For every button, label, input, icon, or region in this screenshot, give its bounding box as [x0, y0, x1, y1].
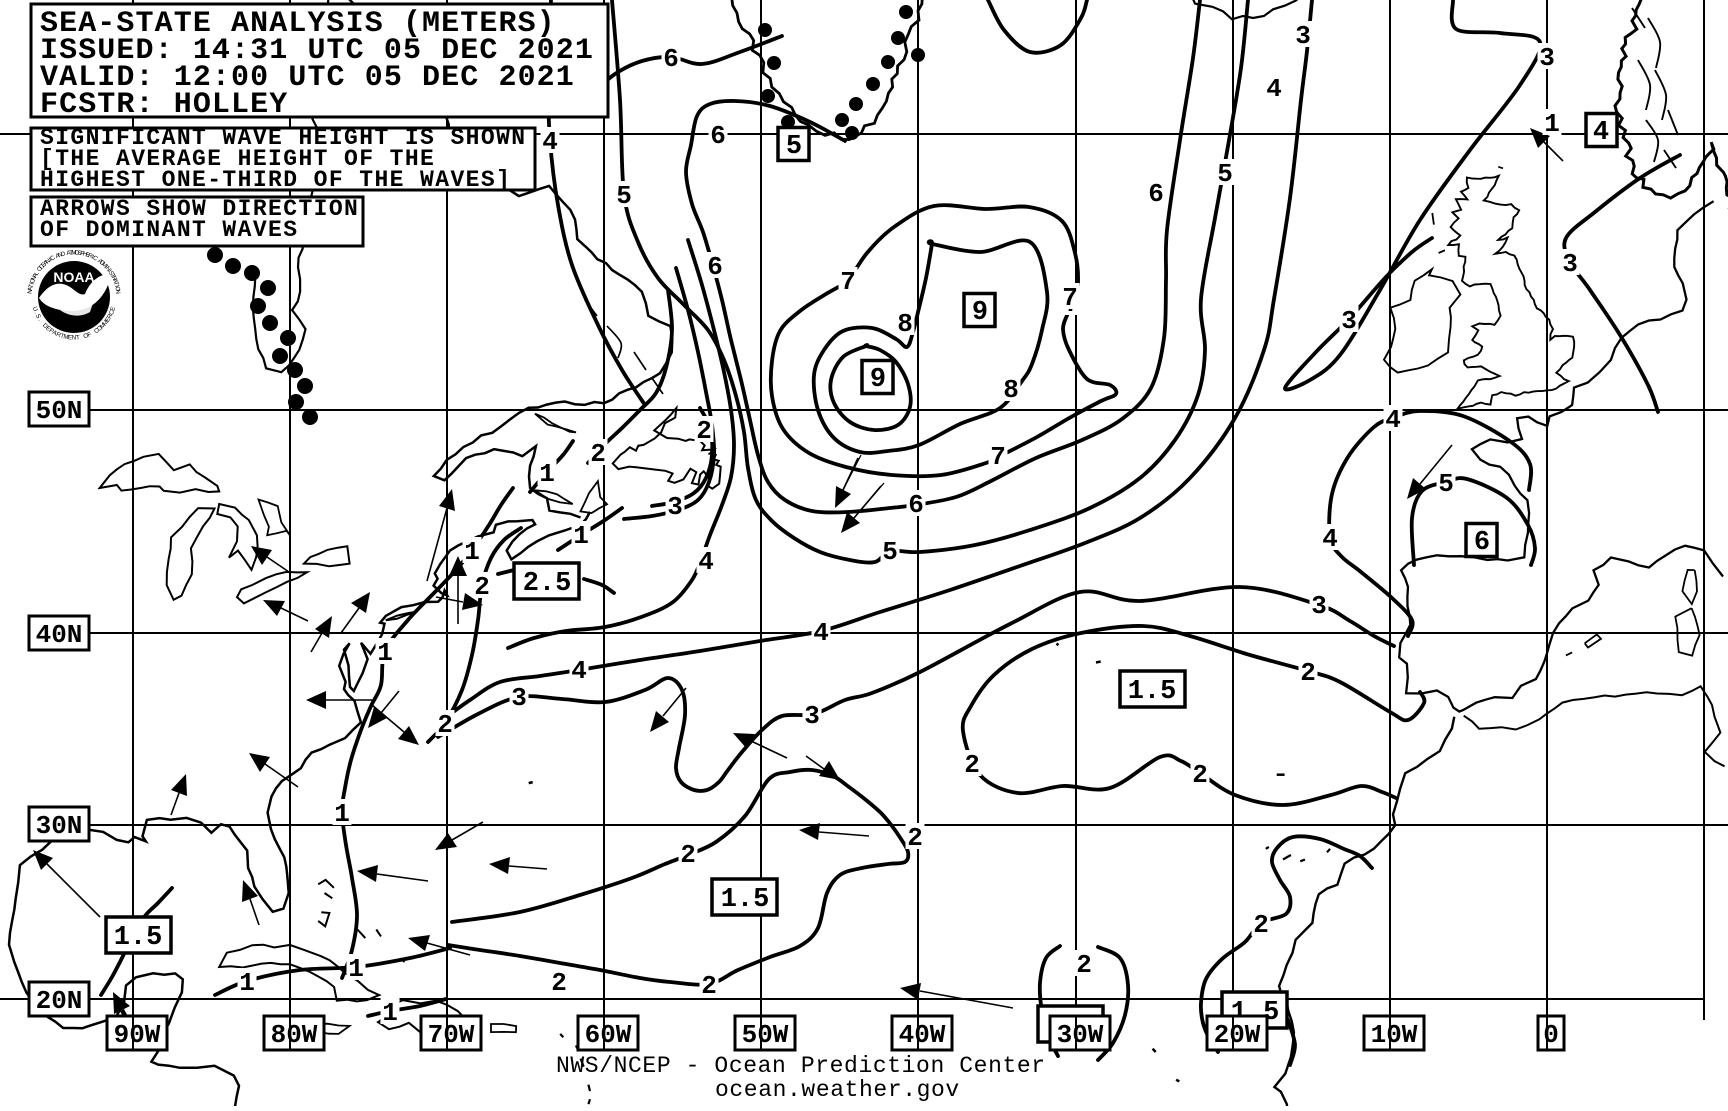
- svg-text:1: 1: [348, 954, 364, 984]
- svg-text:4: 4: [1385, 405, 1401, 435]
- svg-text:3: 3: [667, 492, 683, 522]
- svg-text:4: 4: [571, 656, 587, 686]
- svg-text:40W: 40W: [899, 1020, 946, 1050]
- svg-text:9: 9: [870, 365, 886, 395]
- svg-text:ocean.weather.gov: ocean.weather.gov: [715, 1077, 960, 1103]
- svg-text:OF DOMINANT WAVES: OF DOMINANT WAVES: [40, 217, 298, 243]
- svg-text:HIGHEST ONE-THIRD OF THE WAVES: HIGHEST ONE-THIRD OF THE WAVES]: [40, 167, 511, 193]
- svg-text:2: 2: [964, 750, 980, 780]
- svg-text:8: 8: [1003, 375, 1019, 405]
- svg-text:4: 4: [1266, 74, 1282, 104]
- svg-text:1: 1: [239, 968, 255, 998]
- svg-text:60W: 60W: [585, 1020, 632, 1050]
- svg-text:2: 2: [590, 439, 606, 469]
- svg-text:1.5: 1.5: [114, 923, 163, 953]
- svg-text:20W: 20W: [1214, 1020, 1261, 1050]
- svg-text:NOAA: NOAA: [53, 269, 94, 285]
- svg-text:5: 5: [1217, 159, 1233, 189]
- svg-text:50W: 50W: [742, 1020, 789, 1050]
- svg-text:3: 3: [1539, 43, 1555, 73]
- svg-text:4: 4: [813, 618, 829, 648]
- svg-text:2: 2: [1253, 910, 1269, 940]
- svg-text:20N: 20N: [36, 986, 83, 1016]
- svg-text:40N: 40N: [36, 620, 83, 650]
- svg-text:2: 2: [474, 572, 490, 602]
- svg-text:3: 3: [511, 683, 527, 713]
- svg-text:1: 1: [1544, 109, 1560, 139]
- svg-text:70W: 70W: [428, 1020, 475, 1050]
- svg-text:1: 1: [377, 638, 393, 668]
- svg-text:2: 2: [907, 823, 923, 853]
- svg-text:6: 6: [710, 121, 726, 151]
- svg-text:1: 1: [382, 998, 398, 1028]
- svg-text:6: 6: [707, 252, 723, 282]
- svg-text:4: 4: [698, 547, 714, 577]
- svg-text:4: 4: [1593, 118, 1609, 148]
- svg-text:NWS/NCEP - Ocean Prediction Ce: NWS/NCEP - Ocean Prediction Center: [556, 1053, 1046, 1079]
- svg-text:3: 3: [1341, 306, 1357, 336]
- svg-text:2: 2: [1192, 760, 1208, 790]
- svg-text:4: 4: [1322, 524, 1338, 554]
- svg-text:1.5: 1.5: [1128, 677, 1177, 707]
- svg-text:7: 7: [840, 267, 856, 297]
- svg-text:1: 1: [334, 799, 350, 829]
- svg-text:2: 2: [1076, 950, 1092, 980]
- svg-text:5: 5: [1438, 469, 1454, 499]
- svg-text:6: 6: [908, 490, 924, 520]
- svg-text:9: 9: [972, 298, 988, 328]
- svg-text:50N: 50N: [36, 396, 83, 426]
- svg-text:10W: 10W: [1371, 1020, 1418, 1050]
- svg-text:2: 2: [437, 710, 453, 740]
- svg-text:2: 2: [696, 416, 712, 446]
- svg-text:6: 6: [663, 44, 679, 74]
- svg-text:FCSTR: HOLLEY: FCSTR: HOLLEY: [40, 88, 288, 122]
- svg-text:4: 4: [542, 127, 558, 157]
- svg-text:8: 8: [897, 309, 913, 339]
- svg-text:30W: 30W: [1057, 1020, 1104, 1050]
- svg-text:5: 5: [616, 181, 632, 211]
- svg-text:80W: 80W: [271, 1020, 318, 1050]
- svg-text:2.5: 2.5: [523, 569, 572, 599]
- svg-text:1: 1: [464, 537, 480, 567]
- svg-text:7: 7: [1062, 283, 1078, 313]
- svg-text:1.5: 1.5: [721, 885, 770, 915]
- svg-text:3: 3: [1295, 21, 1311, 51]
- svg-text:0: 0: [1543, 1020, 1559, 1050]
- svg-text:N: N: [114, 289, 121, 294]
- svg-text:2: 2: [1300, 658, 1316, 688]
- svg-text:30N: 30N: [36, 811, 83, 841]
- svg-text:1: 1: [573, 521, 589, 551]
- svg-text:5: 5: [882, 537, 898, 567]
- svg-text:3: 3: [804, 701, 820, 731]
- svg-text:3: 3: [1311, 591, 1327, 621]
- svg-text:5: 5: [786, 132, 802, 162]
- svg-text:2: 2: [701, 971, 717, 1001]
- svg-text:1: 1: [539, 459, 555, 489]
- svg-text:6: 6: [1474, 528, 1490, 558]
- svg-text:2: 2: [551, 968, 567, 998]
- svg-text:3: 3: [1562, 249, 1578, 279]
- svg-text:7: 7: [990, 442, 1006, 472]
- svg-text:90W: 90W: [114, 1020, 161, 1050]
- svg-text:2: 2: [680, 840, 696, 870]
- svg-text:6: 6: [1148, 179, 1164, 209]
